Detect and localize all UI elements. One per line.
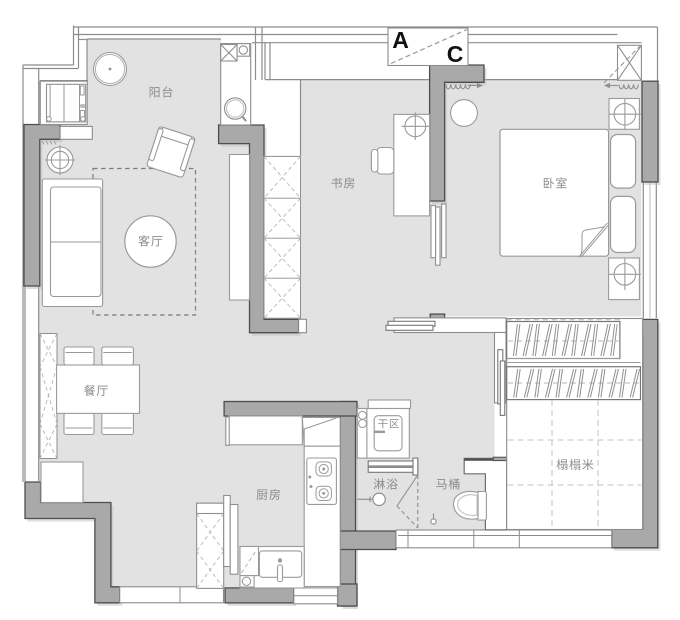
- svg-text:A: A: [392, 27, 409, 53]
- svg-text:C: C: [447, 41, 464, 67]
